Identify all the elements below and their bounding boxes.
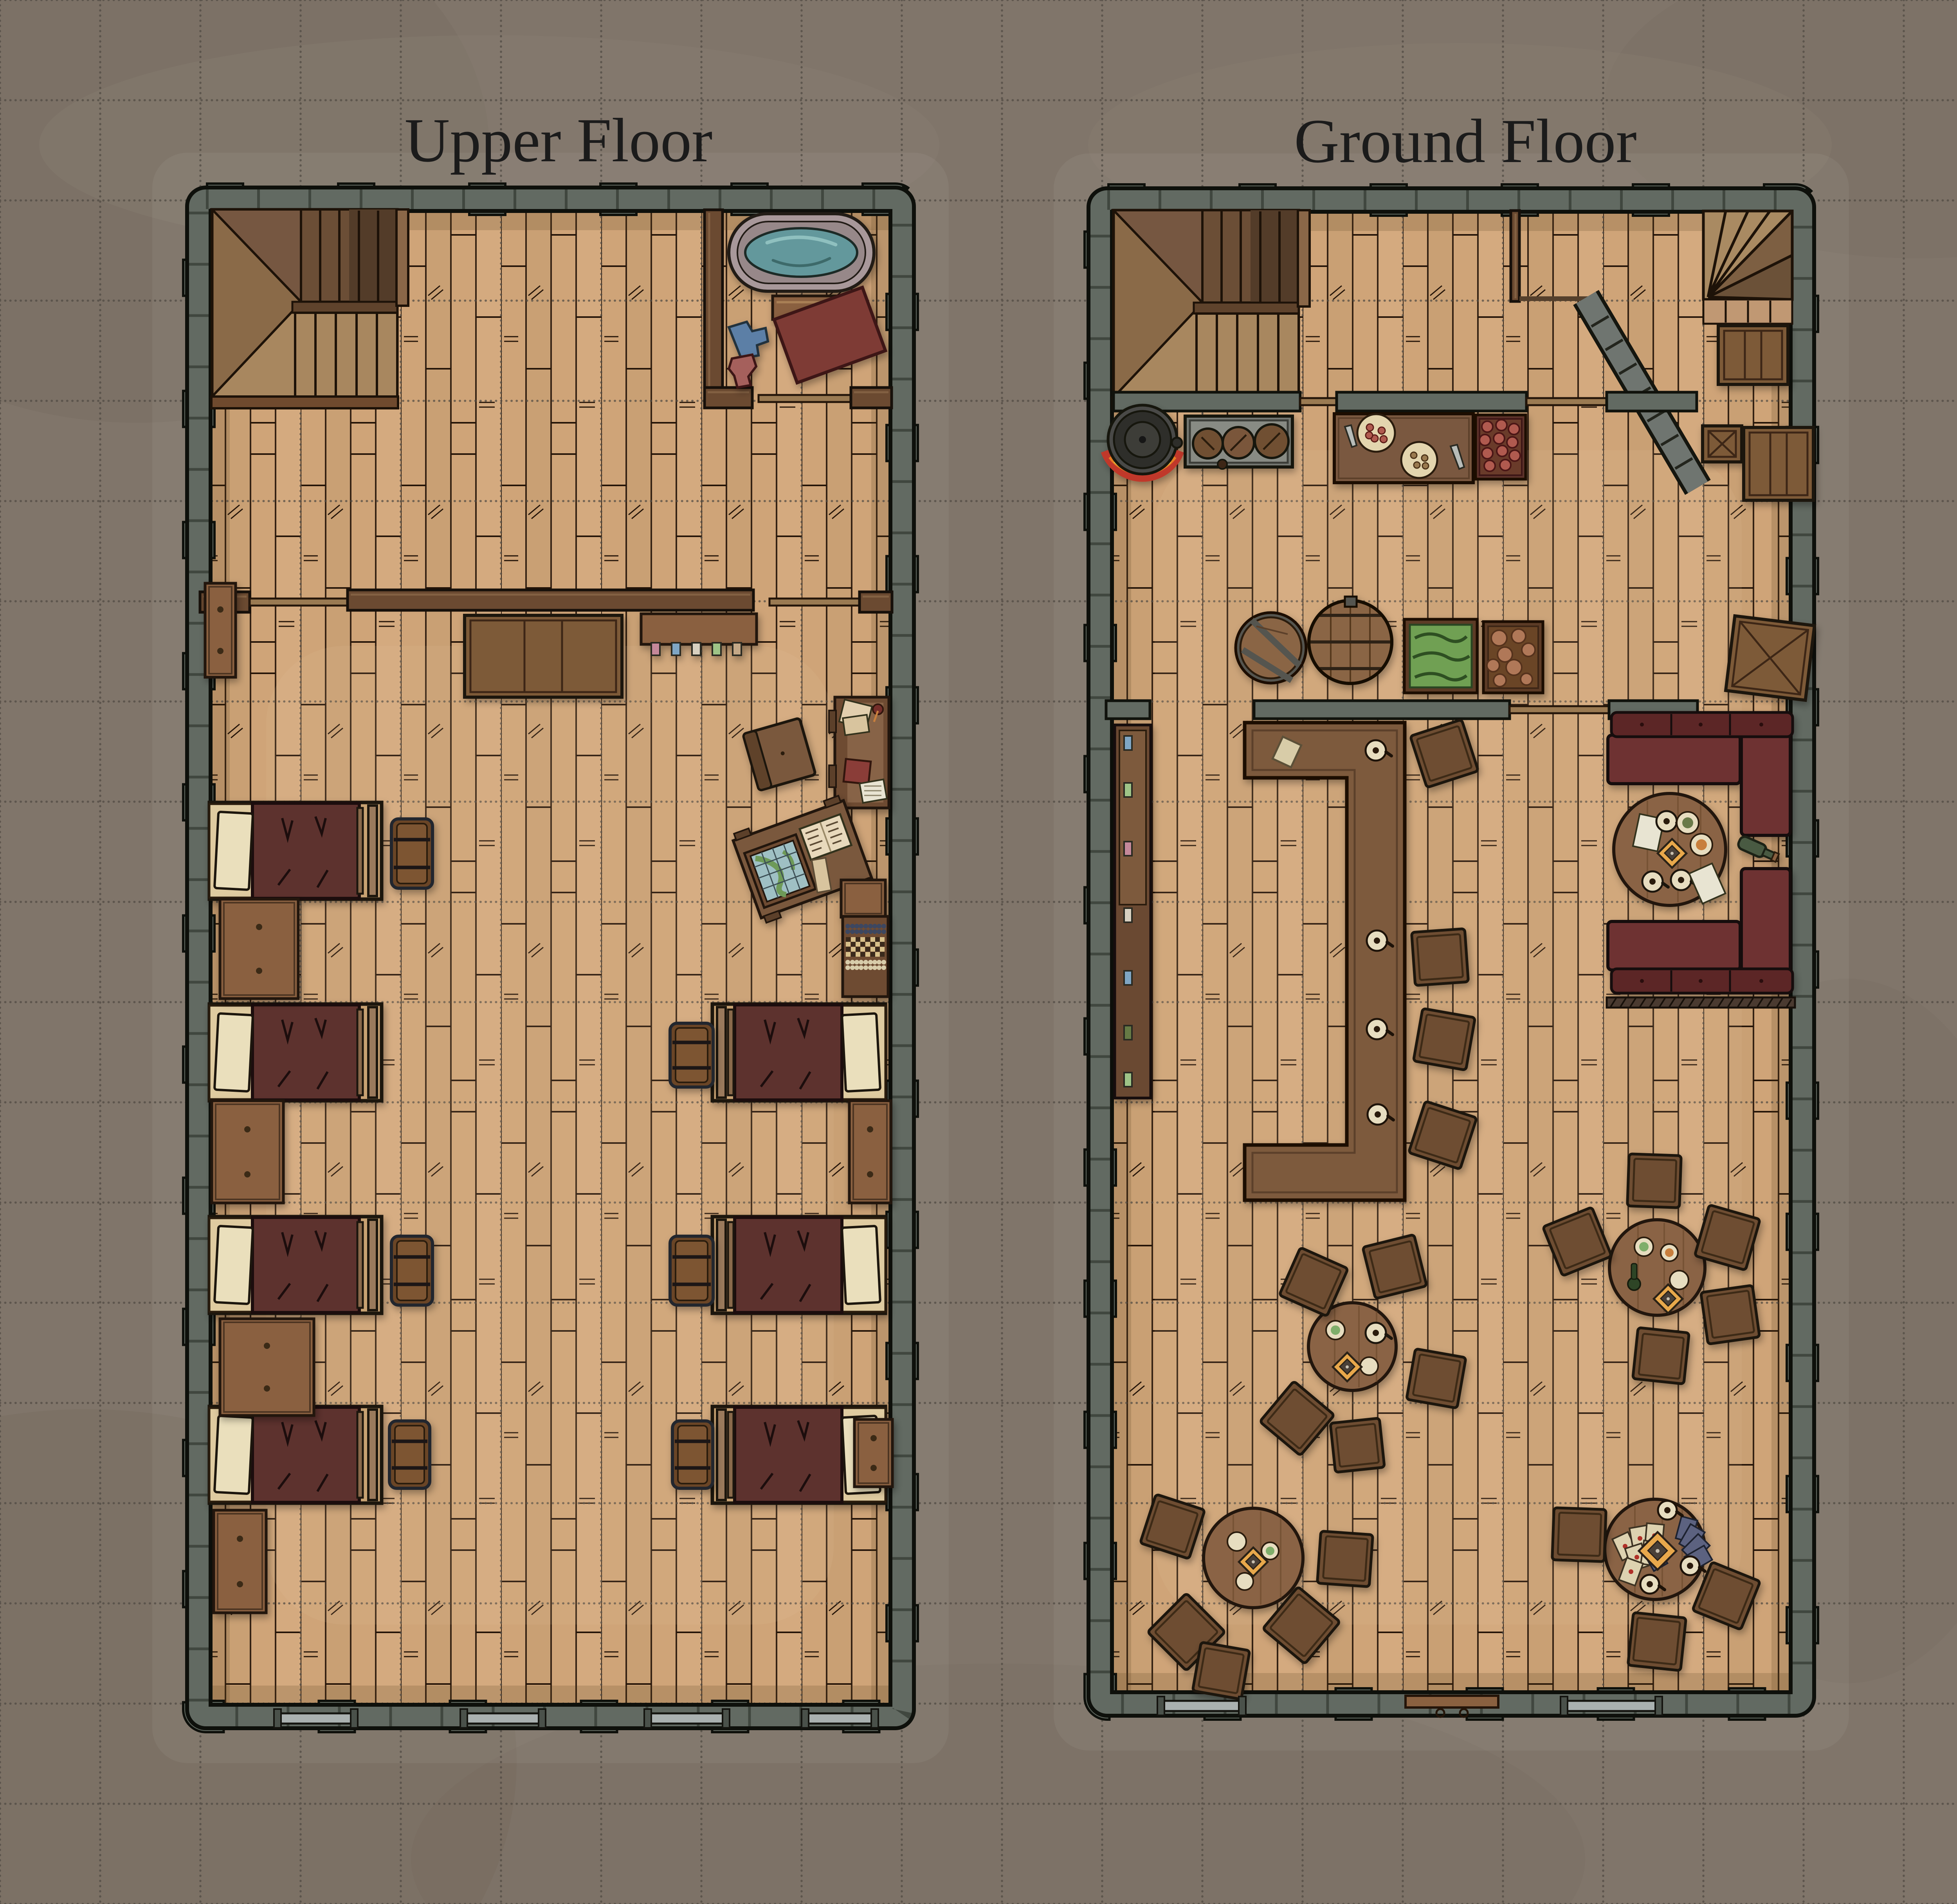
svg-text:Ground Floor: Ground Floor [1294,106,1637,176]
svg-text:Upper Floor: Upper Floor [405,105,713,175]
